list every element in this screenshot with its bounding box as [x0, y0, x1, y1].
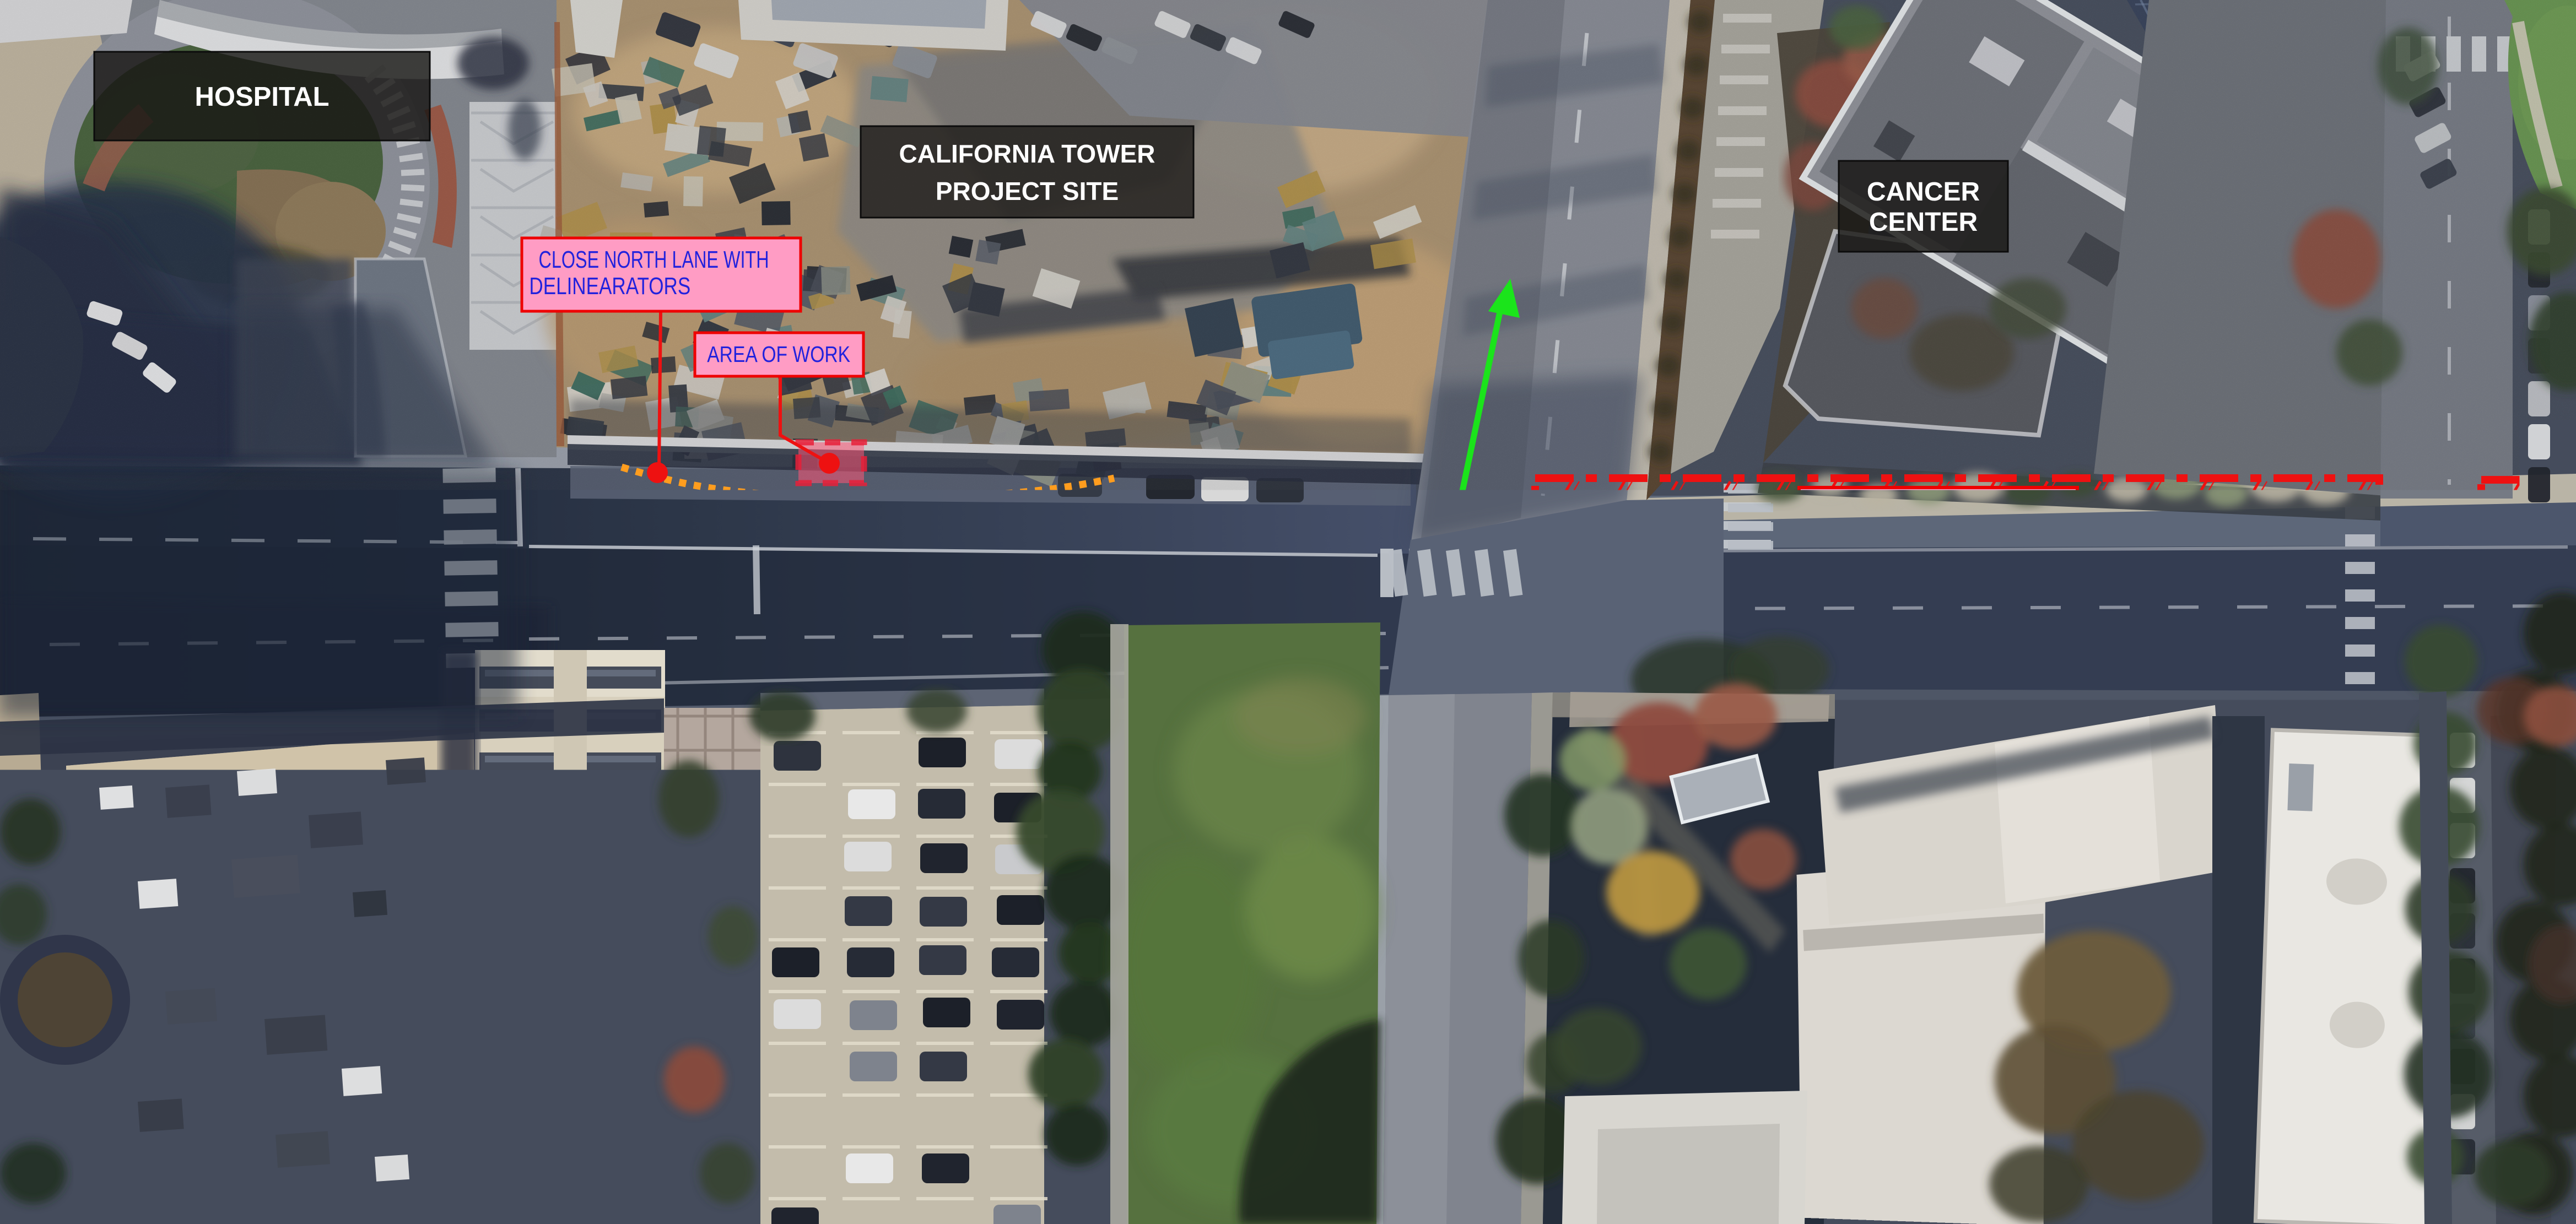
- svg-text:CANCER: CANCER: [1867, 177, 1980, 207]
- svg-text:AREA OF WORK: AREA OF WORK: [707, 342, 850, 367]
- svg-text:CLOSE NORTH LANE WITH: CLOSE NORTH LANE WITH: [539, 246, 769, 273]
- svg-text:MONDAY JANUARY 19 THRU: MONDAY JANUARY 19 THRU: [2162, 1108, 2551, 1147]
- svg-text:EDUCATION BUILDING: EDUCATION BUILDING: [1839, 809, 2111, 837]
- svg-text:CUPX CONSTRUCTION: CUPX CONSTRUCTION: [1813, 499, 2028, 527]
- svg-text:7AM TO 4PM: 7AM TO 4PM: [2352, 1181, 2552, 1220]
- svg-text:SHRINERS: SHRINERS: [433, 920, 570, 949]
- svg-text:CUPx X ST LANE CLOSURE: CUPx X ST LANE CLOSURE: [2206, 1070, 2551, 1109]
- svg-text:FRIDAY JANUARY 30: FRIDAY JANUARY 30: [2249, 1144, 2552, 1183]
- svg-text:DELINEARATORS: DELINEARATORS: [529, 273, 690, 300]
- svg-text:CENTER: CENTER: [1869, 208, 1978, 237]
- svg-text:HOSPITAL: HOSPITAL: [195, 82, 329, 112]
- svg-text:CALIFORNIA TOWER: CALIFORNIA TOWER: [899, 139, 1155, 168]
- svg-text:45TH ST.: 45TH ST.: [1401, 980, 1430, 1092]
- svg-text:PROJECT SITE: PROJECT SITE: [936, 177, 1119, 205]
- svg-text:X ST.: X ST.: [882, 587, 953, 620]
